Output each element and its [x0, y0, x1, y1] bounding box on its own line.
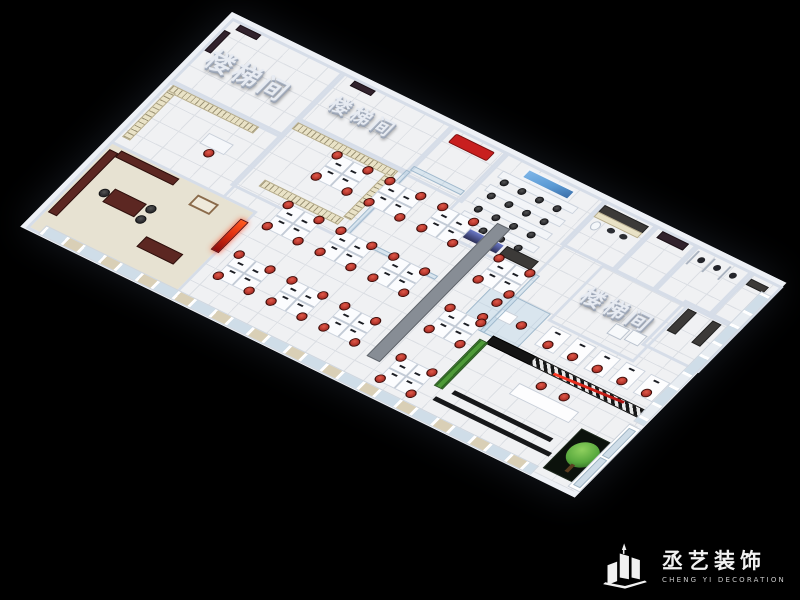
desk-partition [280, 290, 315, 308]
monitor [331, 246, 338, 250]
monitor [392, 264, 399, 268]
monitor [455, 330, 462, 334]
office-chair [540, 339, 556, 351]
monitor [297, 303, 304, 307]
office-chair [565, 351, 581, 363]
monitor [448, 315, 455, 319]
desk-dark [746, 279, 769, 293]
monitor [399, 279, 406, 283]
monitor [579, 344, 586, 348]
door-dark [235, 25, 261, 40]
monitor [290, 288, 297, 292]
desk-partition [381, 266, 416, 284]
monitor [403, 196, 410, 200]
monitor [339, 238, 346, 242]
monitor [237, 262, 244, 266]
monitor [286, 212, 293, 216]
monitor [335, 321, 342, 325]
desk-partition [332, 316, 367, 334]
water-cooler [588, 220, 604, 232]
monitor [407, 271, 414, 275]
monitor [301, 220, 308, 224]
monitor [388, 188, 395, 192]
desk-partition [329, 241, 364, 259]
desk-partition [227, 264, 262, 282]
monitor [489, 274, 496, 278]
monitor [395, 204, 402, 208]
floor-plan: 楼梯间 楼梯间 [20, 12, 786, 498]
brand-name-cn: 丞艺装饰 [662, 550, 786, 573]
monitor [350, 170, 357, 174]
office-chair [513, 320, 529, 332]
desk-partition [389, 367, 424, 385]
toilet [727, 272, 738, 280]
monitor [380, 196, 387, 200]
monitor [350, 329, 357, 333]
monitor [335, 163, 342, 167]
brand-name-en: CHENG YI DECORATION [662, 576, 786, 584]
brand-watermark: 丞艺装饰 CHENG YI DECORATION [597, 542, 786, 592]
desk-partition [487, 268, 522, 286]
tree-trunk [564, 464, 575, 473]
render-canvas: 楼梯间 楼梯间 [0, 0, 800, 600]
office-chair [638, 387, 654, 399]
monitor [448, 230, 455, 234]
office-chair [589, 363, 605, 375]
monitor [229, 270, 236, 274]
monitor [327, 171, 334, 175]
double-dark-door [656, 231, 689, 250]
monitor [406, 380, 413, 384]
building-logo-icon [597, 542, 653, 592]
monitor [497, 266, 504, 270]
monitor [252, 269, 259, 273]
monitor [554, 331, 561, 335]
monitor [512, 273, 519, 277]
monitor [653, 380, 660, 384]
red-sofa [448, 134, 495, 162]
monitor [414, 372, 421, 376]
monitor [456, 221, 463, 225]
wall-shelf [122, 90, 176, 141]
office-chair [614, 375, 630, 387]
desk-partition [276, 215, 311, 233]
toilet [696, 256, 707, 264]
monitor [433, 222, 440, 226]
desk-partition [438, 318, 473, 336]
monitor [342, 178, 349, 182]
monitor [278, 220, 285, 224]
monitor [391, 373, 398, 377]
monitor [244, 277, 251, 281]
monitor [358, 321, 365, 325]
monitor [628, 368, 635, 372]
monitor [504, 281, 511, 285]
monitor [399, 365, 406, 369]
desk-partition [430, 217, 465, 235]
monitor [604, 356, 611, 360]
toilet [711, 264, 722, 272]
monitor [343, 313, 350, 317]
training-desk-rows [506, 155, 605, 203]
desk-partition [378, 191, 413, 209]
monitor [440, 323, 447, 327]
desk-partition [325, 165, 360, 183]
monitor [305, 295, 312, 299]
monitor [441, 214, 448, 218]
door-dark [350, 81, 376, 96]
monitor [282, 296, 289, 300]
printer [605, 227, 616, 235]
printer [618, 233, 629, 241]
monitor [384, 272, 391, 276]
monitor [354, 245, 361, 249]
monitor [346, 253, 353, 257]
monitor [293, 228, 300, 232]
monitor [463, 322, 470, 326]
